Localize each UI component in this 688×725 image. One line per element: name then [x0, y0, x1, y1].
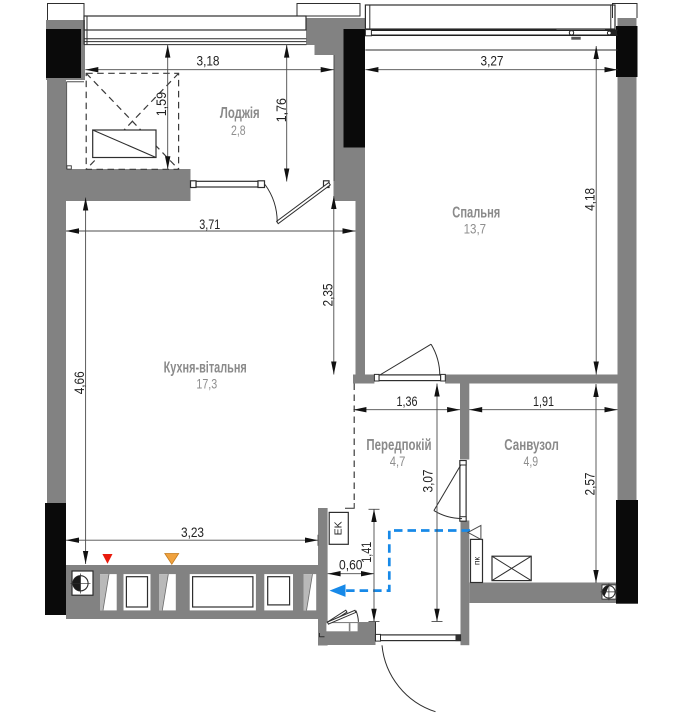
svg-text:Спальня: Спальня — [452, 204, 500, 221]
svg-text:3,71: 3,71 — [199, 216, 220, 232]
svg-text:13,7: 13,7 — [464, 222, 487, 237]
svg-text:Кухня-вітальня: Кухня-вітальня — [164, 360, 247, 377]
svg-text:3,23: 3,23 — [181, 524, 204, 540]
svg-text:4,7: 4,7 — [390, 454, 406, 469]
svg-text:пк: пк — [472, 557, 482, 566]
svg-text:1,76: 1,76 — [273, 98, 289, 122]
svg-text:1,91: 1,91 — [533, 393, 554, 409]
svg-text:EK: EK — [333, 521, 345, 535]
svg-text:Передпокій: Передпокій — [366, 437, 431, 454]
svg-text:17,3: 17,3 — [196, 376, 217, 391]
svg-text:1,41: 1,41 — [358, 542, 374, 563]
svg-text:3,18: 3,18 — [197, 53, 220, 69]
svg-text:2,8: 2,8 — [231, 123, 246, 138]
svg-text:4,9: 4,9 — [524, 454, 539, 469]
svg-text:4,18: 4,18 — [582, 188, 598, 211]
svg-text:Санвузол: Санвузол — [504, 437, 559, 454]
svg-text:1,59: 1,59 — [153, 92, 169, 117]
svg-text:Лоджія: Лоджія — [220, 105, 260, 122]
svg-text:3,07: 3,07 — [420, 469, 436, 492]
svg-text:3,27: 3,27 — [481, 53, 504, 69]
svg-text:4,66: 4,66 — [71, 371, 87, 394]
svg-text:2,35: 2,35 — [320, 283, 336, 306]
svg-text:1,36: 1,36 — [397, 393, 418, 409]
svg-text:2,57: 2,57 — [582, 472, 598, 495]
